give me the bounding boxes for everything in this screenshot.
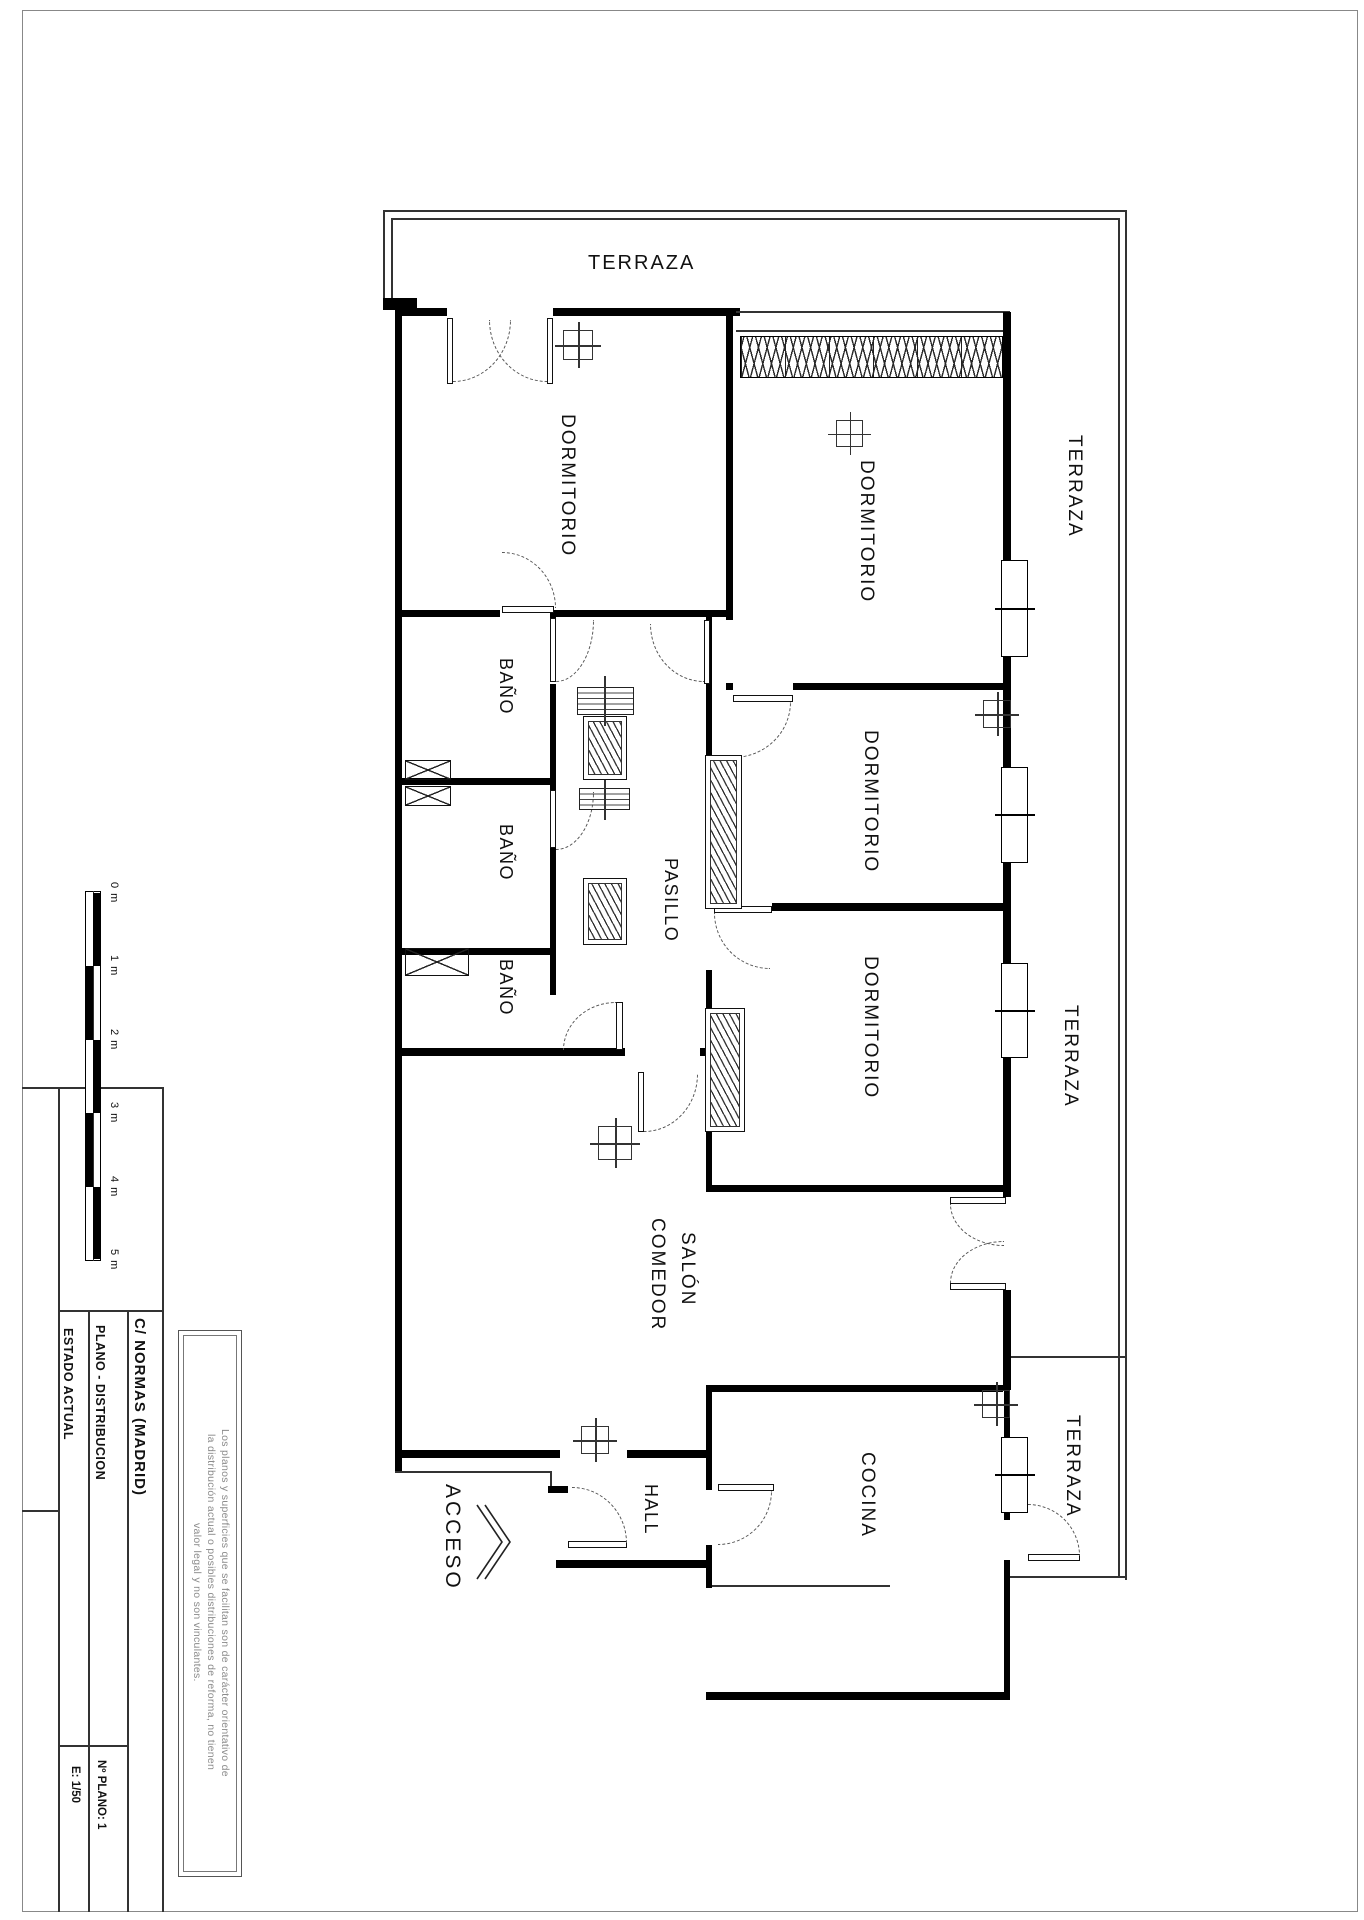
room-label-dormitorio-4: DORMITORIO [859, 956, 881, 1099]
wall [706, 1692, 1010, 1700]
titleblock-line [58, 1310, 162, 1312]
disclaimer-line-3: valor legal y no son vinculantes. [191, 1340, 203, 1865]
access-label: ACCESO [440, 1484, 464, 1591]
terrace-outline [383, 210, 385, 310]
shaft-cross [983, 700, 1011, 728]
radiator [705, 755, 742, 909]
terrace-outline [1118, 1358, 1120, 1578]
door-leaf [616, 1002, 623, 1050]
radiator [583, 878, 627, 945]
access-arrow-icon [474, 1502, 512, 1582]
wall [706, 1385, 712, 1490]
scale-bar-segment [93, 893, 100, 966]
room-label-bano-1: BAÑO [495, 658, 516, 715]
scale-bar-label-3m: 3 m [108, 1102, 120, 1123]
terrace-outline [383, 210, 1127, 212]
shaft-cross [581, 1426, 609, 1454]
wall [550, 684, 556, 790]
room-label-terraza-right-lower: TERRAZA [1061, 1415, 1083, 1518]
project-title: C/ NORMAS (MADRID) [131, 1318, 148, 1496]
plan-type: PLANO - DISTRIBUCION [93, 1325, 107, 1480]
duct [577, 687, 634, 715]
shaft-x [405, 760, 451, 780]
terrace-outline [1118, 218, 1120, 1358]
window-tick [995, 1010, 1035, 1012]
room-label-terraza-top: TERRAZA [588, 252, 695, 275]
wall [772, 903, 1003, 911]
wall [706, 1185, 1010, 1192]
shaft-cross [982, 1390, 1010, 1418]
room-label-pasillo: PASILLO [660, 858, 681, 942]
wall [1003, 1290, 1011, 1390]
wall [556, 610, 726, 617]
wall [400, 1450, 560, 1458]
disclaimer-line-2: la distribución actual o posibles distri… [205, 1340, 217, 1865]
wall [548, 1486, 568, 1493]
titleblock-line [22, 1510, 58, 1512]
titleblock-line [127, 1310, 129, 1912]
room-label-hall: HALL [640, 1484, 661, 1535]
wall [1003, 312, 1011, 560]
disclaimer-line-1: Los planos y superficies que se facilita… [219, 1340, 231, 1865]
scale-bar-segment [93, 1040, 100, 1113]
plan-state: ESTADO ACTUAL [61, 1328, 75, 1440]
wall [1004, 1513, 1010, 1520]
plan-number: Nº PLANO: 1 [95, 1760, 107, 1829]
door-leaf [950, 1283, 1006, 1290]
door-leaf [733, 695, 793, 702]
wall-line [736, 311, 1010, 313]
wall [556, 1560, 706, 1568]
wall [793, 683, 1010, 690]
scale-bar-label-4m: 4 m [108, 1176, 120, 1197]
duct-stack-line [604, 676, 606, 726]
door-leaf [950, 1197, 1006, 1204]
wall [395, 308, 402, 1473]
wall [395, 308, 447, 316]
scale-bar-label-2m: 2 m [108, 1029, 120, 1050]
plan-scale: E: 1/50 [69, 1766, 81, 1803]
wall [726, 683, 733, 690]
room-label-dormitorio-2: DORMITORIO [855, 460, 877, 603]
window-tick [995, 1474, 1035, 1476]
counter-line [712, 1585, 890, 1587]
shaft-x [405, 948, 469, 976]
wall [1004, 1560, 1010, 1697]
door-leaf [704, 620, 710, 684]
wall [553, 308, 740, 316]
wall [706, 1560, 712, 1588]
wall [1003, 863, 1011, 963]
closet-hatch [740, 336, 1003, 378]
duct-stack-line [604, 780, 606, 820]
wall [1003, 1058, 1011, 1197]
scale-bar-segment [86, 966, 93, 1040]
scale-bar-label-1m: 1 m [108, 955, 120, 976]
titleblock-line [162, 1087, 164, 1912]
room-label-bano-2: BAÑO [495, 824, 516, 881]
room-label-comedor: COMEDOR [646, 1218, 668, 1331]
scale-bar-label-5m: 5 m [108, 1249, 120, 1270]
room-label-salon: SALÓN [676, 1232, 698, 1306]
shaft-cross [598, 1126, 632, 1160]
room-label-bano-3: BAÑO [495, 959, 516, 1016]
scale-bar-label-0m: 0 m [108, 882, 120, 903]
shaft-cross [836, 420, 863, 447]
terrace-outline [391, 218, 393, 306]
titleblock-line [58, 1745, 127, 1747]
room-label-cocina: COCINA [856, 1452, 878, 1538]
room-label-terraza-right-middle: TERRAZA [1059, 1005, 1081, 1108]
door-leaf [718, 1484, 774, 1491]
radiator [705, 1008, 745, 1132]
wall [400, 610, 500, 617]
room-label-dormitorio-3: DORMITORIO [859, 730, 881, 873]
terrace-outline [1010, 1576, 1126, 1578]
window-tick [995, 608, 1035, 610]
wall-line [736, 330, 1010, 332]
terrace-outline [1125, 210, 1127, 1580]
porch-line [395, 1471, 552, 1473]
window-tick [995, 814, 1035, 816]
wall [726, 315, 733, 620]
shaft-cross [563, 330, 593, 360]
scale-bar-segment [93, 1187, 100, 1259]
shaft-x [405, 786, 451, 806]
scale-bar-segment [86, 1113, 93, 1187]
floor-plan-sheet: C/ NORMAS (MADRID) PLANO - DISTRIBUCION … [0, 0, 1364, 1920]
titleblock-line [88, 1310, 90, 1912]
wall [550, 848, 556, 995]
titleblock-line [58, 1087, 60, 1912]
wall [627, 1450, 706, 1458]
room-label-dormitorio-1: DORMITORIO [556, 414, 578, 557]
room-label-terraza-right-upper: TERRAZA [1063, 435, 1085, 538]
terrace-outline [391, 218, 1120, 220]
door-leaf [547, 318, 553, 384]
terrace-divider [1010, 1356, 1126, 1358]
wall [712, 1385, 1003, 1392]
